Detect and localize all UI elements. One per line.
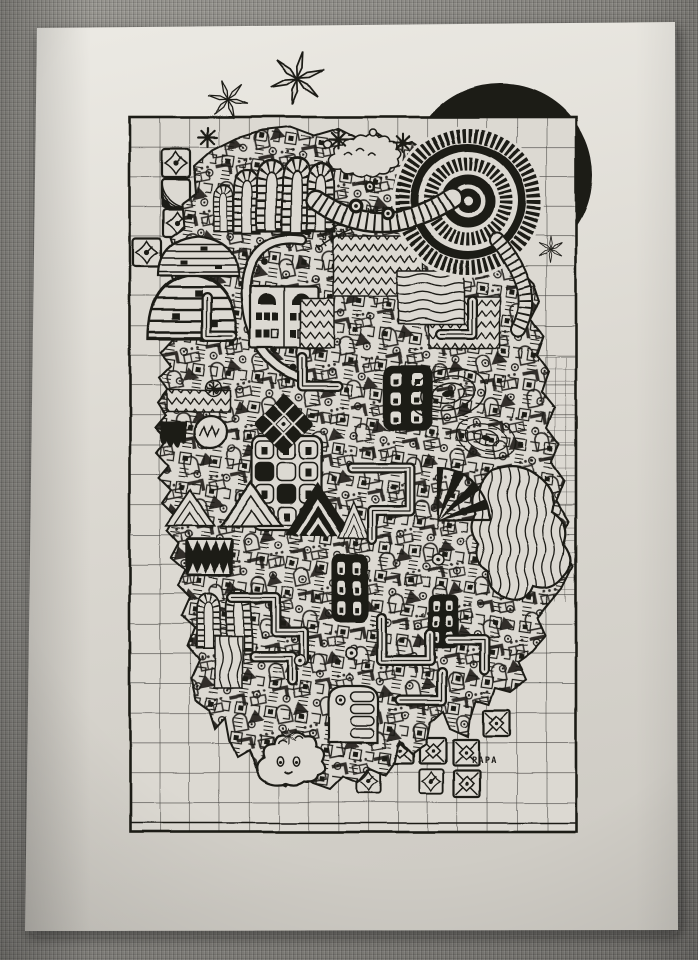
sparkle-icon bbox=[199, 128, 218, 147]
bullseye-target bbox=[392, 125, 544, 277]
lips-face bbox=[328, 686, 378, 742]
sparkle-icon bbox=[394, 134, 412, 152]
sparkle-icon bbox=[329, 131, 348, 150]
artwork-photo: .ink{fill:#1d1b18;stroke:none} .pap{fill… bbox=[0, 0, 698, 960]
artist-signature: PAPA bbox=[472, 756, 498, 766]
photograph: .ink{fill:#1d1b18;stroke:none} .pap{fill… bbox=[0, 0, 698, 960]
doodle-drawing bbox=[130, 46, 592, 832]
